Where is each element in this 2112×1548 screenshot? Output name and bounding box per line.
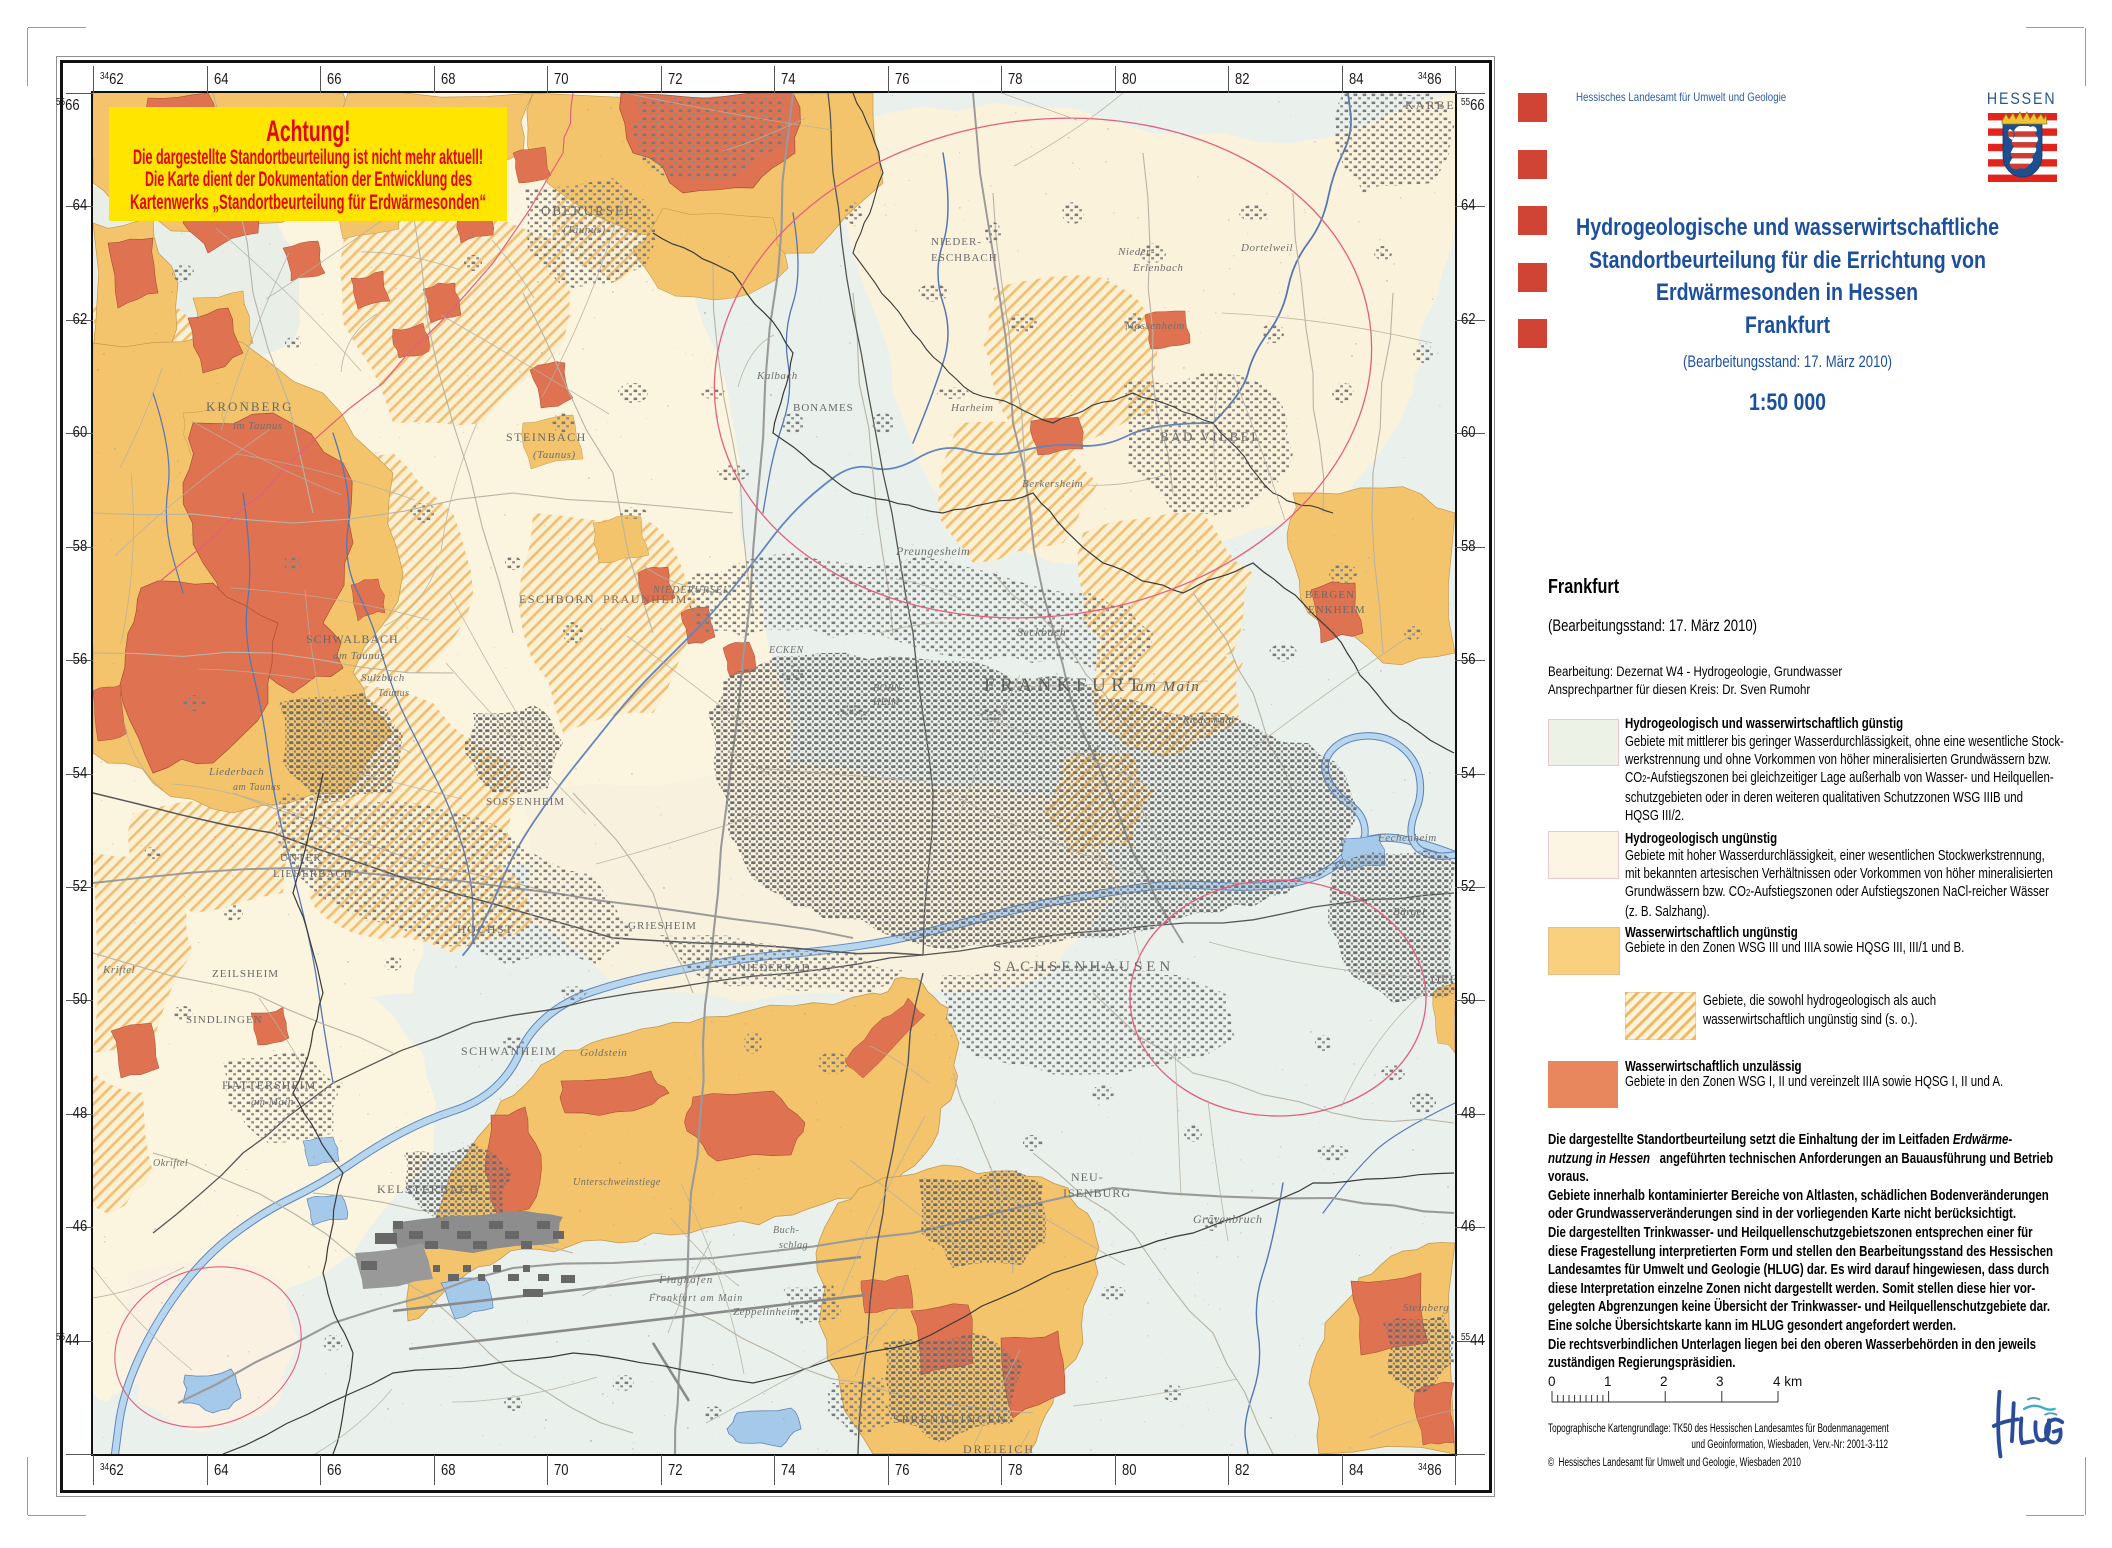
svg-text:Erlenbach: Erlenbach xyxy=(1132,262,1183,274)
svg-text:SPRENDLINGEN: SPRENDLINGEN xyxy=(893,1412,1008,1426)
svg-text:ESCHBACH: ESCHBACH xyxy=(931,252,998,264)
svg-text:HÖCHST: HÖCHST xyxy=(457,922,514,936)
svg-text:am Taunus: am Taunus xyxy=(233,782,281,793)
svg-text:SCHWALBACH: SCHWALBACH xyxy=(306,632,399,646)
svg-text:Okriftel: Okriftel xyxy=(153,1158,188,1169)
svg-text:LIEDERBACH: LIEDERBACH xyxy=(273,868,353,880)
svg-text:Dortelweil: Dortelweil xyxy=(1240,242,1293,254)
svg-text:Kalbach: Kalbach xyxy=(756,370,798,382)
svg-text:Flughafen: Flughafen xyxy=(658,1274,713,1286)
svg-text:SCHWANHEIM: SCHWANHEIM xyxy=(461,1044,557,1058)
svg-text:Massenheim: Massenheim xyxy=(1124,320,1185,332)
svg-text:ISENBURG: ISENBURG xyxy=(1063,1186,1131,1200)
svg-text:SACHSENHAUSEN: SACHSENHAUSEN xyxy=(993,959,1174,975)
svg-text:BAD VILBEL: BAD VILBEL xyxy=(1160,429,1262,444)
svg-text:4 km: 4 km xyxy=(1773,1374,1802,1389)
svg-text:GRIESHEIM: GRIESHEIM xyxy=(628,920,697,932)
svg-text:NIEDERRAD: NIEDERRAD xyxy=(738,962,811,974)
svg-text:KARBEN: KARBEN xyxy=(1405,98,1455,112)
svg-text:HESSEN: HESSEN xyxy=(1987,90,2057,108)
svg-text:OBERURSEL: OBERURSEL xyxy=(541,203,635,218)
svg-text:(Taunus): (Taunus) xyxy=(533,449,576,461)
svg-text:Sulzbach: Sulzbach xyxy=(361,672,405,684)
svg-text:UNTER: UNTER xyxy=(280,852,322,864)
svg-text:Bürgel: Bürgel xyxy=(1393,906,1426,918)
svg-text:am Taunus: am Taunus xyxy=(333,650,385,662)
svg-text:ESCHBORN: ESCHBORN xyxy=(519,592,595,606)
svg-text:am Main: am Main xyxy=(251,1096,294,1108)
svg-text:(Taunus): (Taunus) xyxy=(563,224,606,236)
svg-text:Goldstein: Goldstein xyxy=(580,1047,627,1059)
svg-text:SINDLINGEN: SINDLINGEN xyxy=(186,1014,263,1026)
svg-text:ENKHEIM: ENKHEIM xyxy=(1308,604,1366,616)
svg-text:Riederwald: Riederwald xyxy=(1182,715,1235,726)
svg-text:NIEDER-: NIEDER- xyxy=(931,236,982,248)
svg-text:SOSSENHEIM: SOSSENHEIM xyxy=(486,796,565,808)
svg-text:Fechenheim: Fechenheim xyxy=(1377,832,1437,844)
svg-text:Berkersheim: Berkersheim xyxy=(1022,478,1083,490)
svg-text:NIEDERURSEL: NIEDERURSEL xyxy=(652,585,730,596)
svg-text:FRANKFURT: FRANKFURT xyxy=(984,675,1145,696)
svg-text:Buch-: Buch- xyxy=(773,1225,799,1236)
svg-text:BERGEN: BERGEN xyxy=(1305,589,1355,601)
svg-text:Nieder-: Nieder- xyxy=(1117,246,1155,258)
svg-text:KRONBERG: KRONBERG xyxy=(206,399,294,414)
svg-text:Unterschweinstiege: Unterschweinstiege xyxy=(573,1177,661,1188)
svg-text:STEINBACH: STEINBACH xyxy=(506,430,587,444)
svg-text:Steinberg: Steinberg xyxy=(1403,1302,1449,1314)
svg-text:0: 0 xyxy=(1548,1374,1556,1389)
svg-text:Zeppelinheim: Zeppelinheim xyxy=(733,1306,799,1318)
svg-text:OFF: OFF xyxy=(1431,972,1455,986)
svg-text:Frankfurt am Main: Frankfurt am Main xyxy=(648,1293,743,1304)
svg-text:Liederbach: Liederbach xyxy=(208,766,264,778)
svg-text:ZEILSHEIM: ZEILSHEIM xyxy=(212,968,279,980)
svg-text:KELSTERBACH: KELSTERBACH xyxy=(377,1182,480,1196)
svg-text:Seckbach: Seckbach xyxy=(1017,625,1066,639)
svg-text:Kriftel: Kriftel xyxy=(102,964,135,976)
svg-text:HATTERSHEIM: HATTERSHEIM xyxy=(222,1078,316,1092)
svg-text:2: 2 xyxy=(1660,1374,1668,1389)
svg-text:Preungesheim: Preungesheim xyxy=(895,544,970,558)
svg-text:1: 1 xyxy=(1604,1374,1612,1389)
svg-text:BORN-: BORN- xyxy=(873,683,905,694)
svg-text:am Main: am Main xyxy=(1136,679,1200,695)
svg-text:BONAMES: BONAMES xyxy=(793,402,854,414)
svg-text:NEU-: NEU- xyxy=(1071,1170,1104,1184)
svg-text:ECKEN: ECKEN xyxy=(768,645,805,656)
svg-text:im Taunus: im Taunus xyxy=(233,420,283,432)
svg-text:3: 3 xyxy=(1716,1374,1724,1389)
svg-text:DREIEICH: DREIEICH xyxy=(963,1442,1035,1454)
svg-text:schlag: schlag xyxy=(779,1240,808,1251)
svg-text:Gravenbruch: Gravenbruch xyxy=(1193,1212,1262,1226)
svg-text:Harheim: Harheim xyxy=(950,402,993,414)
svg-text:HEIM: HEIM xyxy=(872,697,900,708)
svg-text:Taunus: Taunus xyxy=(378,688,410,699)
